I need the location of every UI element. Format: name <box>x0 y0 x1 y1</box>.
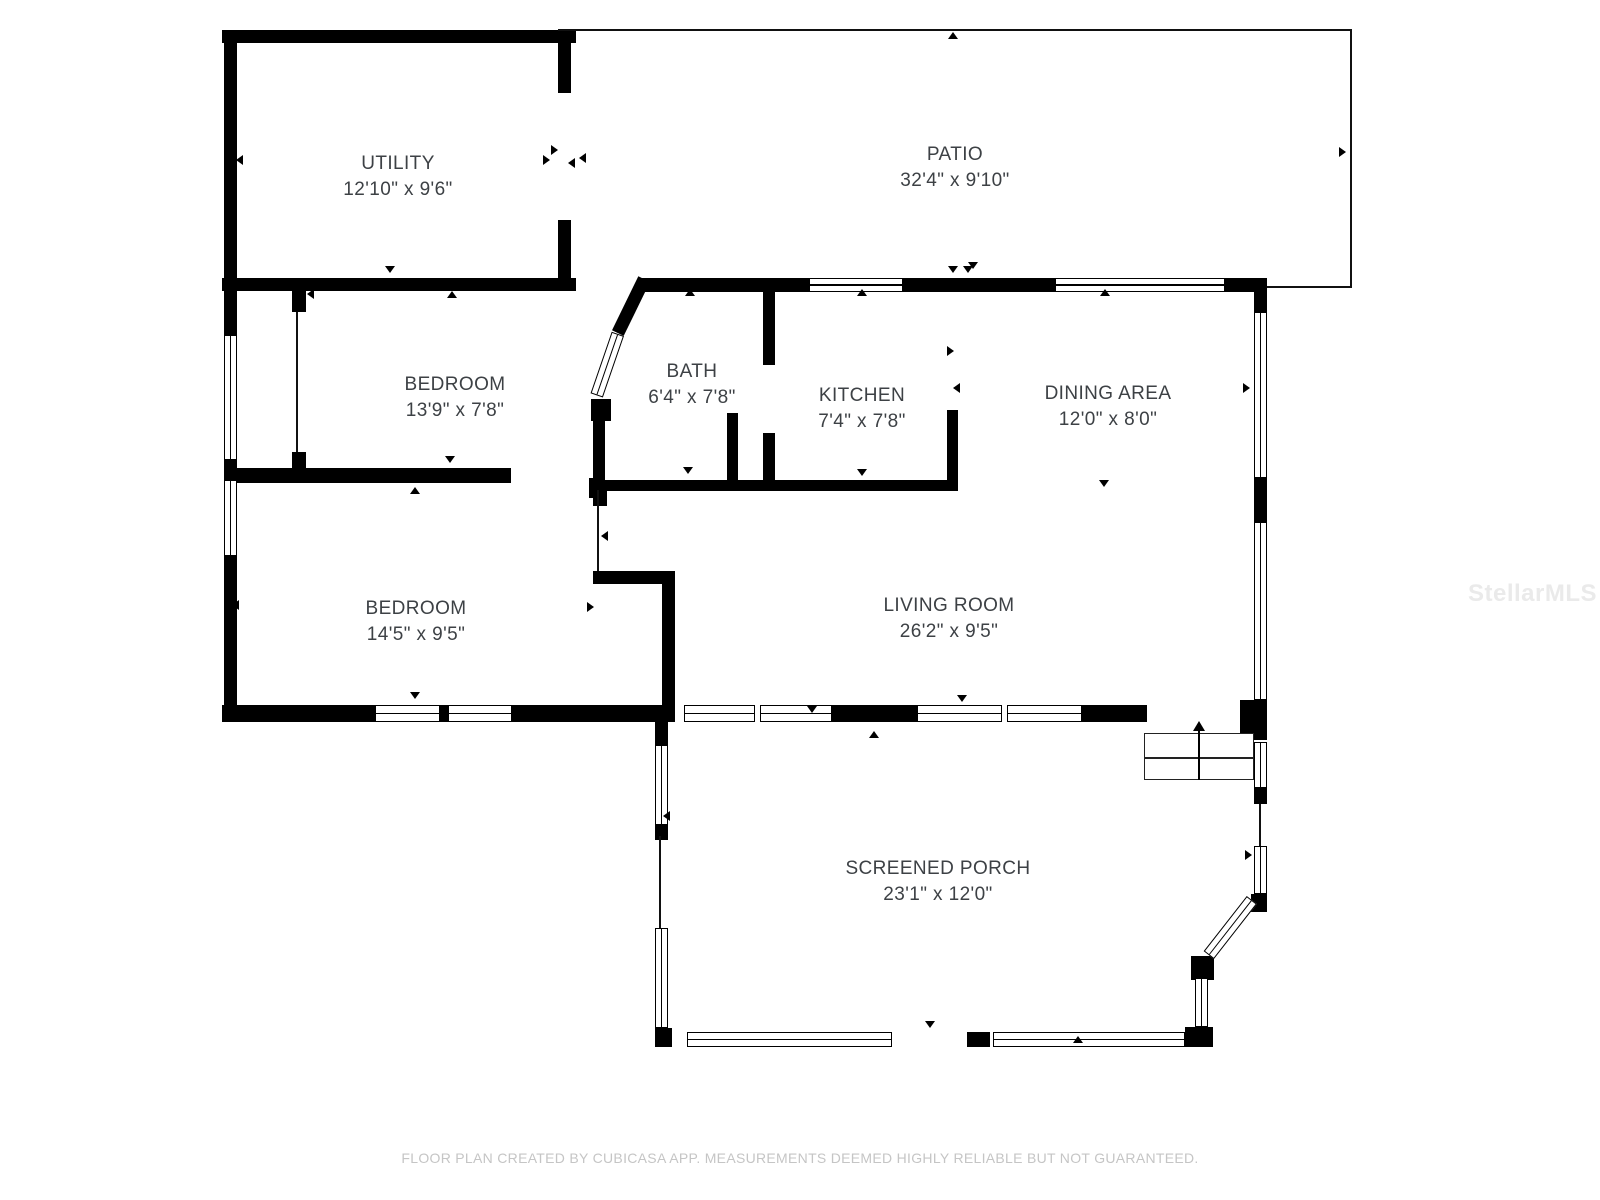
wall <box>1254 788 1267 804</box>
wall <box>655 825 668 840</box>
dimension-arrow <box>236 155 243 165</box>
dimension-arrow <box>953 383 960 393</box>
wall <box>224 291 237 335</box>
room-label-patio: PATIO32'4" x 9'10" <box>900 142 1009 194</box>
room-name: UTILITY <box>343 151 452 177</box>
window <box>687 1032 892 1047</box>
window <box>224 480 237 556</box>
wall <box>763 288 775 365</box>
room-label-dining-area: DINING AREA12'0" x 8'0" <box>1045 381 1172 433</box>
thin-wall <box>1350 29 1352 288</box>
wall <box>593 480 958 491</box>
wall <box>222 278 576 291</box>
wall <box>593 571 675 584</box>
room-name: KITCHEN <box>818 383 905 409</box>
thin-wall <box>659 836 661 930</box>
entry-arrow-stem <box>1198 731 1200 780</box>
window-pane-line <box>688 1039 891 1041</box>
thin-wall <box>1267 286 1352 288</box>
window-pane-line <box>1260 523 1262 699</box>
wall <box>655 705 668 745</box>
window-pane-line <box>810 284 902 286</box>
wall <box>1191 956 1214 980</box>
dimension-arrow <box>947 346 954 356</box>
wall <box>292 291 306 312</box>
wall <box>727 413 738 483</box>
room-name: SCREENED PORCH <box>845 856 1030 882</box>
dimension-arrow <box>948 32 958 39</box>
thin-wall <box>1259 804 1261 846</box>
wall <box>593 418 605 484</box>
window <box>224 335 237 460</box>
wall <box>640 278 809 292</box>
dimension-arrow <box>410 692 420 699</box>
dimension-arrow <box>685 289 695 296</box>
dimension-arrow <box>857 469 867 476</box>
window-pane-line <box>918 713 1081 715</box>
room-label-living-room: LIVING ROOM26'2" x 9'5" <box>883 593 1014 645</box>
room-name: DINING AREA <box>1045 381 1172 407</box>
dimension-arrow <box>807 706 817 713</box>
dimension-arrow <box>857 289 867 296</box>
window-pane-line <box>230 336 232 459</box>
window-pane-line <box>1201 979 1203 1026</box>
wall <box>947 410 958 483</box>
dimension-arrow <box>968 262 978 269</box>
wall <box>1254 478 1267 522</box>
window <box>448 705 512 722</box>
room-label-utility: UTILITY12'10" x 9'6" <box>343 151 452 203</box>
wall <box>1225 278 1267 292</box>
window-pane-line <box>1056 284 1224 286</box>
thin-wall <box>296 312 298 452</box>
wall <box>591 399 611 421</box>
room-label-kitchen: KITCHEN7'4" x 7'8" <box>818 383 905 435</box>
room-dimensions: 23'1" x 12'0" <box>845 882 1030 908</box>
floor-plan: FLOOR PLAN CREATED BY CUBICASA APP. MEAS… <box>0 0 1600 1200</box>
dimension-arrow <box>869 731 879 738</box>
room-name: LIVING ROOM <box>883 593 1014 619</box>
dimension-arrow <box>543 155 550 165</box>
diagonal-wall <box>612 276 650 336</box>
dimension-arrow <box>232 600 239 610</box>
window-pane-line <box>230 481 232 555</box>
window <box>655 928 668 1028</box>
dimension-arrow <box>447 291 457 298</box>
wall <box>1082 705 1147 722</box>
window <box>1055 278 1225 292</box>
window-pane-line <box>1260 847 1262 893</box>
room-dimensions: 32'4" x 9'10" <box>900 168 1009 194</box>
dimension-arrow <box>1073 1036 1083 1043</box>
room-dimensions: 7'4" x 7'8" <box>818 409 905 435</box>
wall <box>832 705 917 722</box>
window-pane-line <box>597 335 619 395</box>
room-dimensions: 12'10" x 9'6" <box>343 177 452 203</box>
wall <box>222 705 375 722</box>
window-pane-line <box>449 713 511 715</box>
dimension-arrow <box>663 811 670 821</box>
window <box>917 705 1082 722</box>
dimension-arrow <box>1245 850 1252 860</box>
wall <box>558 220 571 291</box>
diagonal-window <box>1204 896 1257 959</box>
window-pane-line <box>1260 743 1262 787</box>
room-dimensions: 13'9" x 7'8" <box>405 398 506 424</box>
dimension-arrow <box>948 266 958 273</box>
window <box>1254 522 1267 700</box>
stellar-mls-watermark: StellarMLS <box>1468 580 1597 608</box>
window <box>375 705 440 722</box>
window-sash-divider <box>754 705 761 722</box>
dimension-arrow <box>601 531 608 541</box>
wall <box>1185 1027 1213 1047</box>
wall <box>225 468 511 483</box>
dimension-arrow <box>925 1021 935 1028</box>
window <box>1254 846 1267 894</box>
window-sash-divider <box>1001 705 1008 722</box>
wall <box>440 705 448 722</box>
wall <box>558 30 571 93</box>
footer-disclaimer: FLOOR PLAN CREATED BY CUBICASA APP. MEAS… <box>0 1150 1600 1166</box>
window-pane-line <box>1209 900 1252 955</box>
wall <box>224 556 237 722</box>
dimension-arrow <box>445 456 455 463</box>
dimension-arrow <box>385 266 395 273</box>
dimension-arrow <box>587 602 594 612</box>
thin-wall <box>597 490 599 571</box>
window <box>1254 742 1267 788</box>
thin-wall <box>558 29 1352 31</box>
wall <box>967 1032 990 1047</box>
window-pane-line <box>376 713 439 715</box>
room-dimensions: 14'5" x 9'5" <box>366 622 467 648</box>
window <box>1195 978 1208 1027</box>
dimension-arrow <box>551 145 558 155</box>
room-label-bath: BATH6'4" x 7'8" <box>648 359 735 411</box>
dimension-arrow <box>579 153 586 163</box>
entry-arrow-up-icon <box>1193 721 1205 731</box>
room-name: PATIO <box>900 142 1009 168</box>
dimension-arrow <box>683 467 693 474</box>
window <box>809 278 903 292</box>
window-pane-line <box>661 929 663 1027</box>
dimension-arrow <box>307 289 314 299</box>
dimension-arrow <box>391 33 401 40</box>
room-name: BEDROOM <box>405 372 506 398</box>
window-pane-line <box>1260 313 1262 477</box>
dimension-arrow <box>410 487 420 494</box>
room-label-bedroom-2: BEDROOM14'5" x 9'5" <box>366 596 467 648</box>
window-pane-line <box>994 1039 1184 1041</box>
dimension-arrow <box>445 472 455 479</box>
wall <box>903 278 1055 292</box>
diagonal-window <box>591 332 624 398</box>
wall <box>655 1028 672 1047</box>
room-label-bedroom-1: BEDROOM13'9" x 7'8" <box>405 372 506 424</box>
wall <box>662 584 675 722</box>
room-label-screened-porch: SCREENED PORCH23'1" x 12'0" <box>845 856 1030 908</box>
room-name: BATH <box>648 359 735 385</box>
dimension-arrow <box>1099 480 1109 487</box>
window <box>993 1032 1185 1047</box>
dimension-arrow <box>1339 147 1346 157</box>
wall <box>593 488 607 506</box>
room-dimensions: 26'2" x 9'5" <box>883 619 1014 645</box>
room-dimensions: 6'4" x 7'8" <box>648 385 735 411</box>
wall <box>1254 292 1267 312</box>
room-name: BEDROOM <box>366 596 467 622</box>
dimension-arrow <box>1243 383 1250 393</box>
window-pane-line <box>661 746 663 824</box>
room-dimensions: 12'0" x 8'0" <box>1045 407 1172 433</box>
dimension-arrow <box>1100 289 1110 296</box>
wall <box>763 433 775 483</box>
window <box>1254 312 1267 478</box>
dimension-arrow <box>568 158 575 168</box>
wall <box>512 705 672 722</box>
dimension-arrow <box>957 695 967 702</box>
